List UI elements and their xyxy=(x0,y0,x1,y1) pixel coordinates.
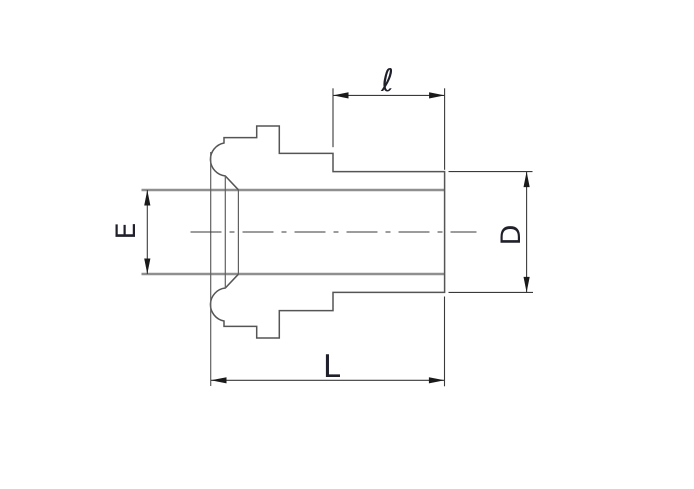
ell-arrow-left xyxy=(333,92,349,98)
E-arrow-down xyxy=(144,259,150,275)
ell-arrow-right xyxy=(429,92,445,98)
L-label: L xyxy=(323,349,341,385)
D-arrow-down xyxy=(524,277,530,293)
ell-label: ℓ xyxy=(380,63,394,99)
fitting-diagram-canvas: ℓ E D L xyxy=(0,0,694,489)
L-arrow-right xyxy=(429,377,445,383)
E-arrow-up xyxy=(144,190,150,206)
E-label: E xyxy=(111,222,142,239)
D-label: D xyxy=(496,225,527,246)
D-arrow-up xyxy=(524,172,530,188)
dimension-E: E xyxy=(111,190,150,274)
dimension-ell: ℓ xyxy=(333,63,445,170)
L-arrow-left xyxy=(211,377,227,383)
part-outline-group xyxy=(142,126,445,386)
technical-drawing-page: ℓ E D L xyxy=(0,0,694,489)
